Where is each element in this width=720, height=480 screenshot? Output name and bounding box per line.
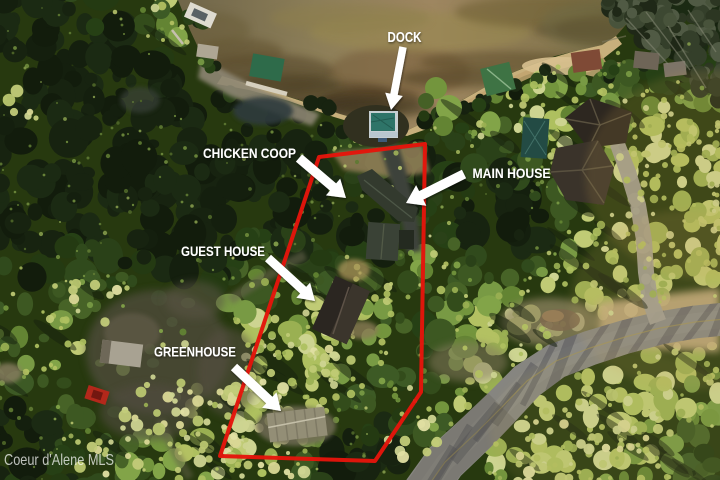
svg-text:DOCK: DOCK <box>388 30 422 46</box>
svg-text:GUEST HOUSE: GUEST HOUSE <box>181 243 265 259</box>
svg-text:CHICKEN COOP: CHICKEN COOP <box>203 145 296 161</box>
svg-text:MAIN HOUSE: MAIN HOUSE <box>473 165 551 181</box>
svg-text:GREENHOUSE: GREENHOUSE <box>154 344 236 360</box>
svg-text:Coeur d'Alene MLS: Coeur d'Alene MLS <box>4 452 114 469</box>
